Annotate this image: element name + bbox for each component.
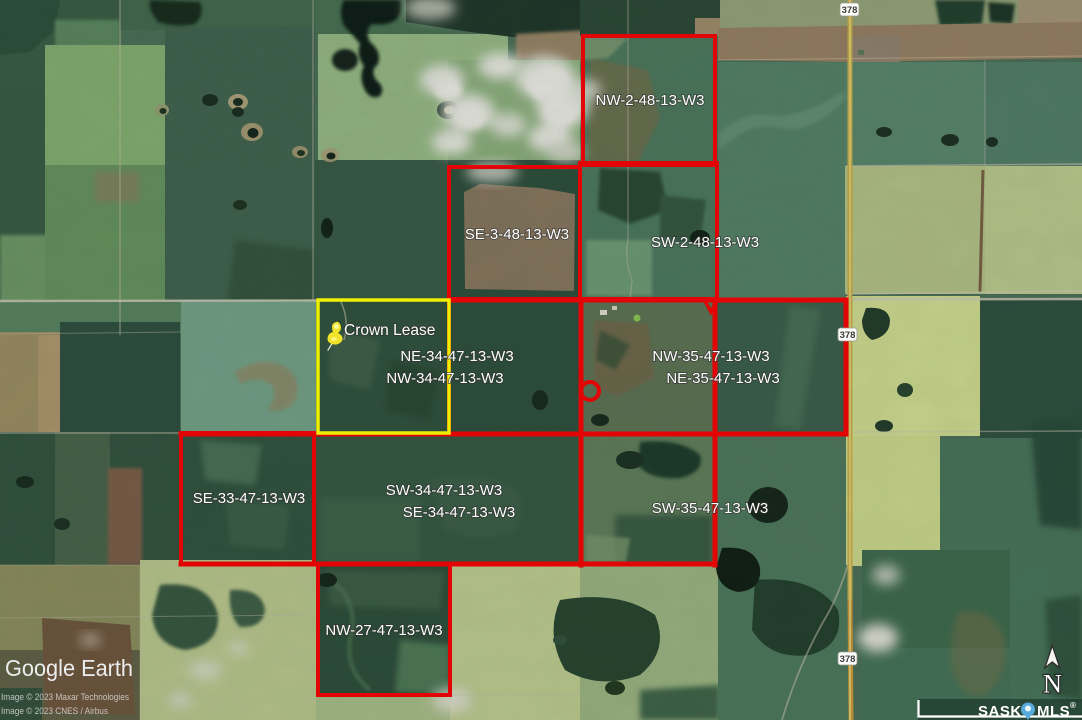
svg-text:N: N <box>1043 669 1062 699</box>
svg-text:NW-34-47-13-W3: NW-34-47-13-W3 <box>386 370 503 387</box>
svg-text:378: 378 <box>840 654 856 665</box>
svg-text:Image © 2023 CNES / Airbus: Image © 2023 CNES / Airbus <box>1 706 108 717</box>
svg-text:NW-27-47-13-W3: NW-27-47-13-W3 <box>325 622 442 639</box>
svg-text:378: 378 <box>840 330 856 341</box>
svg-text:NW-35-47-13-W3: NW-35-47-13-W3 <box>652 348 769 365</box>
svg-text:SW-34-47-13-W3: SW-34-47-13-W3 <box>386 482 502 499</box>
svg-text:SW-35-47-13-W3: SW-35-47-13-W3 <box>652 500 768 517</box>
svg-text:SE-3-48-13-W3: SE-3-48-13-W3 <box>465 226 569 243</box>
svg-text:Google Earth: Google Earth <box>5 655 133 681</box>
svg-text:NW-2-48-13-W3: NW-2-48-13-W3 <box>596 92 705 109</box>
svg-text:378: 378 <box>842 5 858 16</box>
svg-text:SE-34-47-13-W3: SE-34-47-13-W3 <box>403 504 516 521</box>
svg-text:Crown Lease: Crown Lease <box>344 322 435 339</box>
svg-text:NE-34-47-13-W3: NE-34-47-13-W3 <box>400 348 513 365</box>
svg-text:MLS: MLS <box>1037 703 1070 720</box>
svg-text:SW-2-48-13-W3: SW-2-48-13-W3 <box>651 234 759 251</box>
svg-text:®: ® <box>1070 701 1076 710</box>
svg-text:SASK: SASK <box>978 703 1022 720</box>
svg-text:Image © 2023 Maxar Technologie: Image © 2023 Maxar Technologies <box>1 692 129 703</box>
svg-text:SE-33-47-13-W3: SE-33-47-13-W3 <box>193 490 306 507</box>
svg-text:NE-35-47-13-W3: NE-35-47-13-W3 <box>666 370 779 387</box>
